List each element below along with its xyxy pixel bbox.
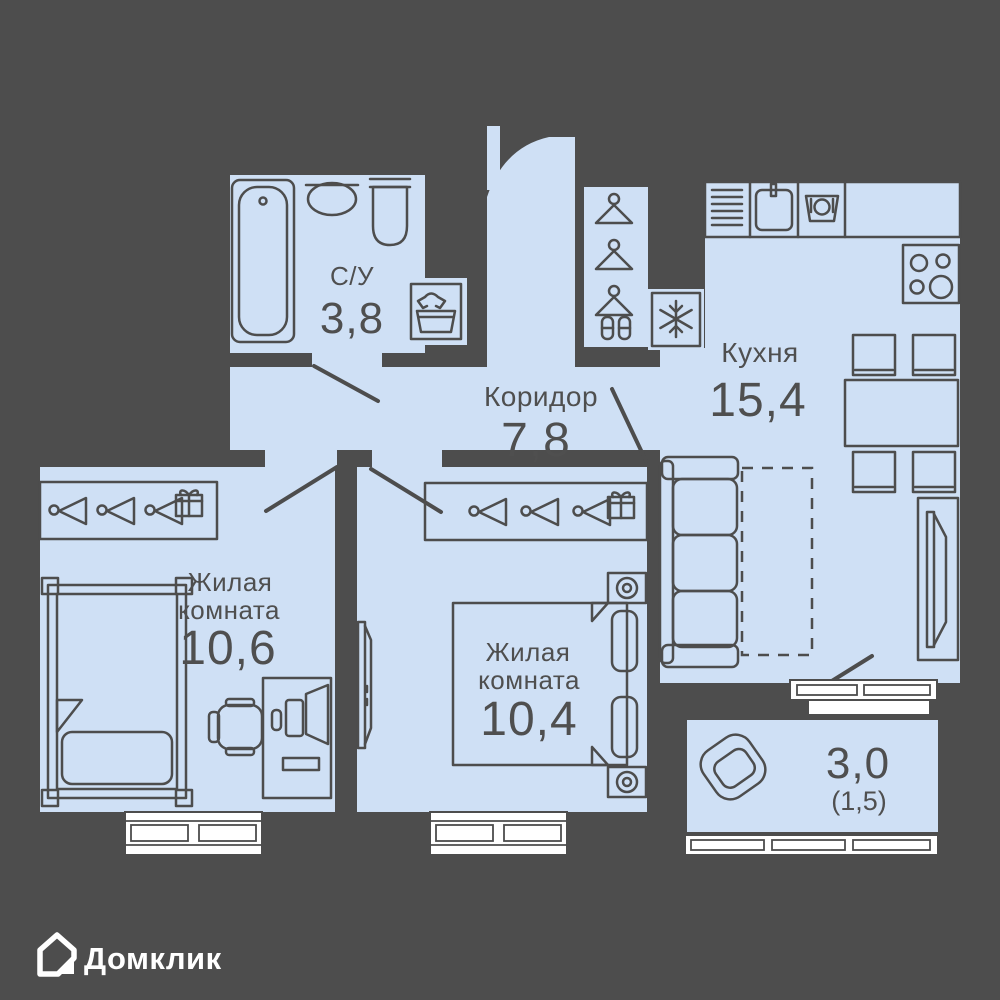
room-label: Коридор [484, 381, 598, 412]
entrance-doorway [487, 126, 500, 190]
bathroom-door-gap [312, 348, 382, 370]
area-label: 10,4 [480, 693, 577, 746]
window-living-room-1 [125, 812, 262, 855]
area-label: 15,4 [709, 374, 806, 427]
area-label: 10,6 [179, 622, 276, 675]
room-label: Жилая [486, 637, 571, 667]
room-label: Жилая [188, 567, 273, 597]
area-secondary-label: (1,5) [831, 786, 887, 816]
area-label: 7,8 [501, 414, 571, 467]
logo-text: Домклик [84, 941, 222, 976]
floor-plan: С/У 3,8 Коридор 7,8 Кухня 15,4 Жилая ком… [0, 0, 1000, 1000]
hall-closet-floor [584, 187, 648, 347]
area-label: 3,0 [826, 739, 890, 788]
area-label: 3,8 [320, 294, 384, 343]
corridor-entry-floor [487, 137, 575, 367]
room-label: комната [178, 595, 280, 625]
room1-door-gap [265, 448, 337, 469]
room-label: Кухня [721, 337, 798, 368]
room-label: С/У [330, 261, 374, 291]
balcony-door-window [790, 680, 937, 715]
window-balcony [685, 835, 938, 855]
balcony-floor [687, 720, 938, 832]
room2-door-gap [372, 448, 442, 469]
room-label: комната [478, 665, 580, 695]
window-living-room-2 [430, 812, 567, 855]
